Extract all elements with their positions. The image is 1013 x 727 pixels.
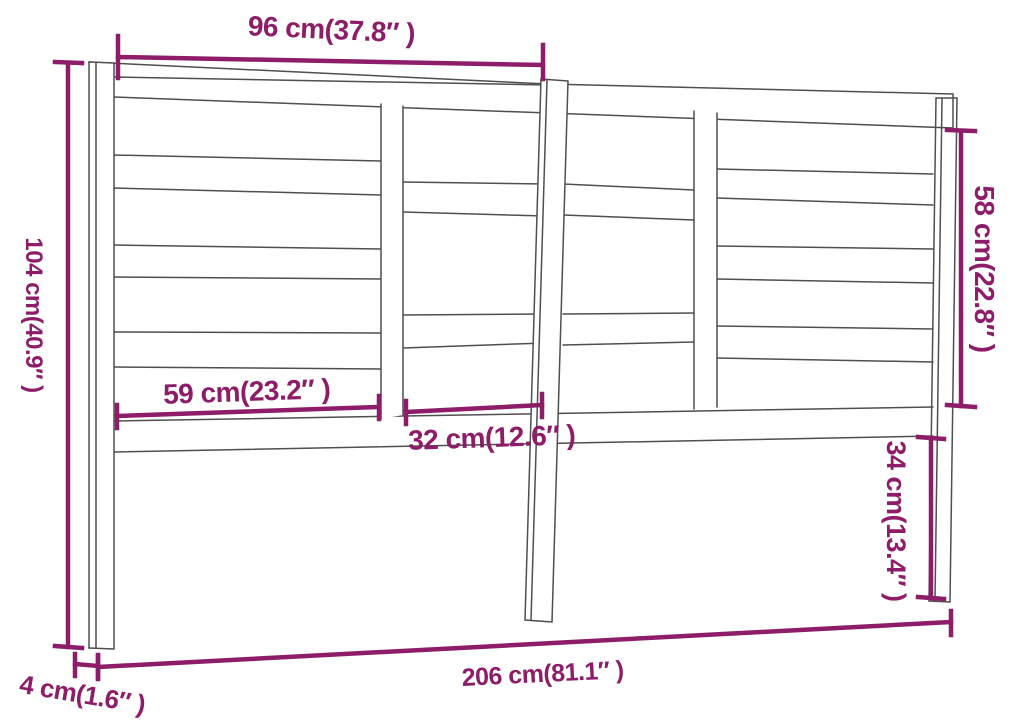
- divider-batten-right: [694, 111, 717, 409]
- diagram-canvas: 96 cm(37.8″ ) 104 cm(40.9″ ) 58 cm(22.8″…: [0, 0, 1013, 727]
- dimension-line: [75, 664, 98, 666]
- background: [0, 0, 1013, 727]
- dimension-label-right-lower-height: 34 cm(13.4″ ): [881, 440, 911, 601]
- dimension-tick: [918, 437, 944, 439]
- divider-batten-left: [381, 104, 403, 419]
- dimension-tick: [918, 597, 944, 599]
- dimension-tick: [947, 405, 975, 407]
- dimension-tick: [55, 646, 82, 648]
- dimension-label-left-height: 104 cm(40.9″ ): [20, 237, 47, 392]
- dimension-label-left-slat-width: 59 cm(23.2″ ): [163, 373, 331, 410]
- dimension-label-right-upper-height: 58 cm(22.8″ ): [969, 185, 1000, 352]
- left-leg: [89, 62, 114, 649]
- dimension-tick: [55, 62, 82, 63]
- dimension-tick: [947, 130, 975, 131]
- dimension-label-center-slat-width: 32 cm(12.6″ ): [408, 419, 576, 456]
